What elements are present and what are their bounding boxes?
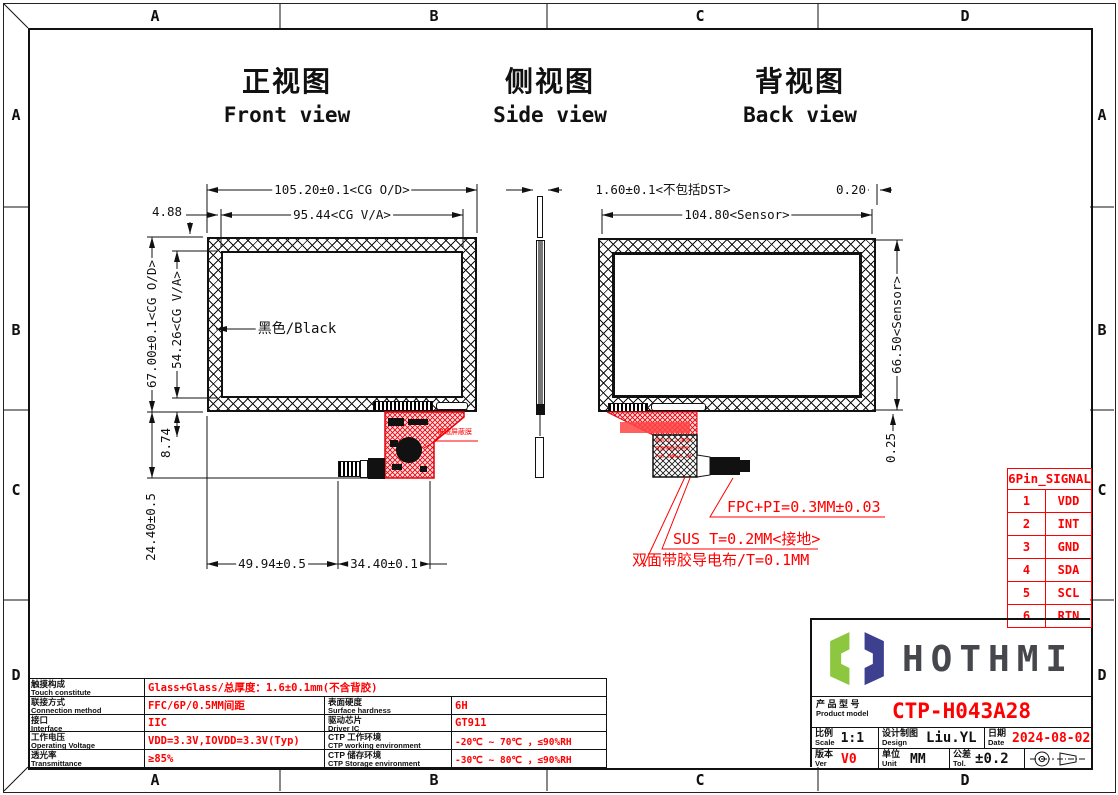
spec-label: 联接方式 Connection method xyxy=(28,697,145,715)
front-view-title-en: Front view xyxy=(224,103,350,127)
dim-front-edge-offset: 4.88 xyxy=(150,206,184,219)
zone-top-b: B xyxy=(429,7,438,25)
dim-front-fpc-length: 24.40±0.5 xyxy=(145,491,158,563)
spec-label-en: Interface xyxy=(31,725,144,733)
pin-number: 4 xyxy=(1008,559,1046,581)
pin-signal: INT xyxy=(1046,513,1091,535)
drawing-sheet: 钢片t0.2<接地> 双面带胶导电布 T=0.2MM±0.1M xyxy=(0,0,1118,795)
zone-bottom-a: A xyxy=(150,771,159,789)
scale-label: 比例 Scale xyxy=(812,729,835,747)
note-conductive-tape: 双面带胶导电布/T=0.1MM xyxy=(632,553,809,568)
scale-value: 1:1 xyxy=(841,731,864,746)
tolerance-value: ±0.2 xyxy=(975,751,1009,767)
pin-row: 5 SCL xyxy=(1008,582,1091,605)
title-block: HOTHMI 产 品 型 号 Product model CTP-H043A28… xyxy=(810,618,1090,767)
dim-back-edge-gap: 0.20 xyxy=(834,184,868,197)
tolerance-label: 公差 Tol. xyxy=(950,750,971,768)
spec-value: ≥85% xyxy=(145,750,325,768)
dim-back-sensor-width: 104.80<Sensor> xyxy=(682,209,791,222)
scale-design-date-row: 比例 Scale 1:1 设计制图 Design Liu.YL 日期 Date … xyxy=(812,727,1092,748)
label-front-black-border: 黑色/Black xyxy=(256,322,339,336)
spec-label-en: Driver IC xyxy=(328,725,451,733)
zone-top-a: A xyxy=(150,7,159,25)
spec-value: -30℃ ~ 80℃ ，≤90%RH xyxy=(452,750,607,768)
product-model-label: 产 品 型 号 Product model xyxy=(816,700,869,718)
tolerance-label-en: Tol. xyxy=(953,760,971,768)
pin-signal: SDA xyxy=(1046,559,1091,581)
pin-number: 3 xyxy=(1008,536,1046,558)
date-label: 日期 Date xyxy=(985,729,1006,747)
spec-value: 6H xyxy=(452,697,607,715)
third-angle-projection-icon xyxy=(1030,750,1088,768)
zone-top-d: D xyxy=(960,7,969,25)
zone-bottom-d: D xyxy=(960,771,969,789)
date-label-en: Date xyxy=(988,739,1006,747)
pin-row: 3 GND xyxy=(1008,536,1091,559)
design-label: 设计制图 Design xyxy=(879,729,918,747)
spec-label-en: Operating Voltage xyxy=(31,742,144,750)
zone-right-a: A xyxy=(1097,106,1106,124)
back-view-title-cn: 背视图 xyxy=(755,60,845,100)
spec-label: 表面硬度 Surface hardness xyxy=(325,697,452,715)
date-value: 2024-08-02 xyxy=(1012,731,1090,746)
dim-front-bottom-right: 34.40±0.1 xyxy=(348,558,420,571)
pin-number: 1 xyxy=(1008,490,1046,512)
spec-value: -20℃ ~ 70℃ ，≤90%RH xyxy=(452,732,607,750)
product-model-value: CTP-H043A28 xyxy=(892,699,1031,723)
scale-label-en: Scale xyxy=(815,739,835,747)
hothmi-logo-text: HOTHMI xyxy=(902,639,1074,680)
front-view-title-cn: 正视图 xyxy=(242,60,332,100)
spec-value: Glass+Glass/总厚度：1.6±0.1mm(不含背胶) xyxy=(145,679,607,697)
spec-value: GT911 xyxy=(452,715,607,733)
zone-right-b: B xyxy=(1097,321,1106,339)
pin-table-title: 6Pin_SIGNAL xyxy=(1008,469,1091,490)
zone-right-c: C xyxy=(1097,481,1106,499)
spec-label-en: CTP working environment xyxy=(328,742,451,750)
spec-value: IIC xyxy=(145,715,325,733)
zone-bottom-b: B xyxy=(429,771,438,789)
spec-label-en: Transmittance xyxy=(31,760,144,768)
zone-left-a: A xyxy=(11,106,20,124)
spec-table: 触摸构成 Touch constitute Glass+Glass/总厚度：1.… xyxy=(28,678,607,768)
unit-label-en: Unit xyxy=(882,760,900,768)
company-logo: HOTHMI xyxy=(826,626,1086,692)
unit-label: 单位 Unit xyxy=(879,750,900,768)
note-sus-ground: SUS T=0.2MM<接地> xyxy=(673,532,820,547)
dim-back-sensor-height: 66.50<Sensor> xyxy=(891,274,904,376)
zone-bottom-c: C xyxy=(695,771,704,789)
spec-label-en: CTP Storage environment xyxy=(328,760,451,768)
spec-label: 工作电压 Operating Voltage xyxy=(28,732,145,750)
zone-left-b: B xyxy=(11,321,20,339)
spec-value: VDD=3.3V,IOVDD=3.3V(Typ) xyxy=(145,732,325,750)
zone-top-c: C xyxy=(695,7,704,25)
version-value: V0 xyxy=(841,752,857,767)
spec-label: 触摸构成 Touch constitute xyxy=(28,679,145,697)
spec-label-en: Connection method xyxy=(31,707,144,715)
zone-left-d: D xyxy=(11,666,20,684)
design-value: Liu.YL xyxy=(926,730,977,746)
ver-unit-tol-row: 版本 Ver V0 单位 Unit MM 公差 Tol. ±0.2 xyxy=(812,748,1092,769)
unit-value: MM xyxy=(910,752,926,767)
pin-row: 4 SDA xyxy=(1008,559,1091,582)
note-fpc-thickness: FPC+PI=0.3MM±0.03 xyxy=(727,500,881,515)
version-label: 版本 Ver xyxy=(812,750,833,768)
pin-signal: SCL xyxy=(1046,582,1091,604)
spec-label: CTP 工作环境 CTP working environment xyxy=(325,732,452,750)
dim-front-bottom-left: 49.94±0.5 xyxy=(236,558,308,571)
version-label-en: Ver xyxy=(815,760,833,768)
pin-row: 1 VDD xyxy=(1008,490,1091,513)
product-model-row: 产 品 型 号 Product model CTP-H043A28 xyxy=(812,696,1092,727)
pin-signal-table: 6Pin_SIGNAL 1 VDD 2 INT 3 GND 4 SDA 5 SC… xyxy=(1007,468,1092,628)
spec-label-en: Touch constitute xyxy=(31,689,144,697)
hothmi-logo-icon xyxy=(826,630,888,688)
spec-label: 透光率 Transmittance xyxy=(28,750,145,768)
label-front-shield-film: 电磁屏蔽膜 xyxy=(437,429,472,436)
dim-front-fpc-offset: 8.74 xyxy=(160,426,173,460)
pin-signal: VDD xyxy=(1046,490,1091,512)
back-view-title-en: Back view xyxy=(743,103,857,127)
design-label-en: Design xyxy=(882,739,918,747)
spec-label-en: Surface hardness xyxy=(328,707,451,715)
dim-front-outer-height: 67.00±0.1<CG O/D> xyxy=(146,258,159,390)
side-view-title-cn: 侧视图 xyxy=(505,60,595,100)
pin-number: 2 xyxy=(1008,513,1046,535)
spec-value: FFC/6P/0.5MM间距 xyxy=(145,697,325,715)
spec-label: 驱动芯片 Driver IC xyxy=(325,715,452,733)
dim-side-thickness: 1.60±0.1<不包括DST> xyxy=(593,184,732,197)
dim-front-outer-width: 105.20±0.1<CG O/D> xyxy=(272,184,411,197)
dim-back-bottom-gap: 0.25 xyxy=(885,431,898,465)
dim-front-va-height: 54.26<CG V/A> xyxy=(171,269,184,371)
zone-left-c: C xyxy=(11,481,20,499)
spec-label: CTP 储存环境 CTP Storage environment xyxy=(325,750,452,768)
product-model-label-en: Product model xyxy=(816,710,869,718)
spec-label: 接口 Interface xyxy=(28,715,145,733)
pin-row: 2 INT xyxy=(1008,513,1091,536)
pin-signal: GND xyxy=(1046,536,1091,558)
zone-right-d: D xyxy=(1097,666,1106,684)
side-view-title-en: Side view xyxy=(493,103,607,127)
pin-number: 5 xyxy=(1008,582,1046,604)
dim-front-va-width: 95.44<CG V/A> xyxy=(291,209,393,222)
